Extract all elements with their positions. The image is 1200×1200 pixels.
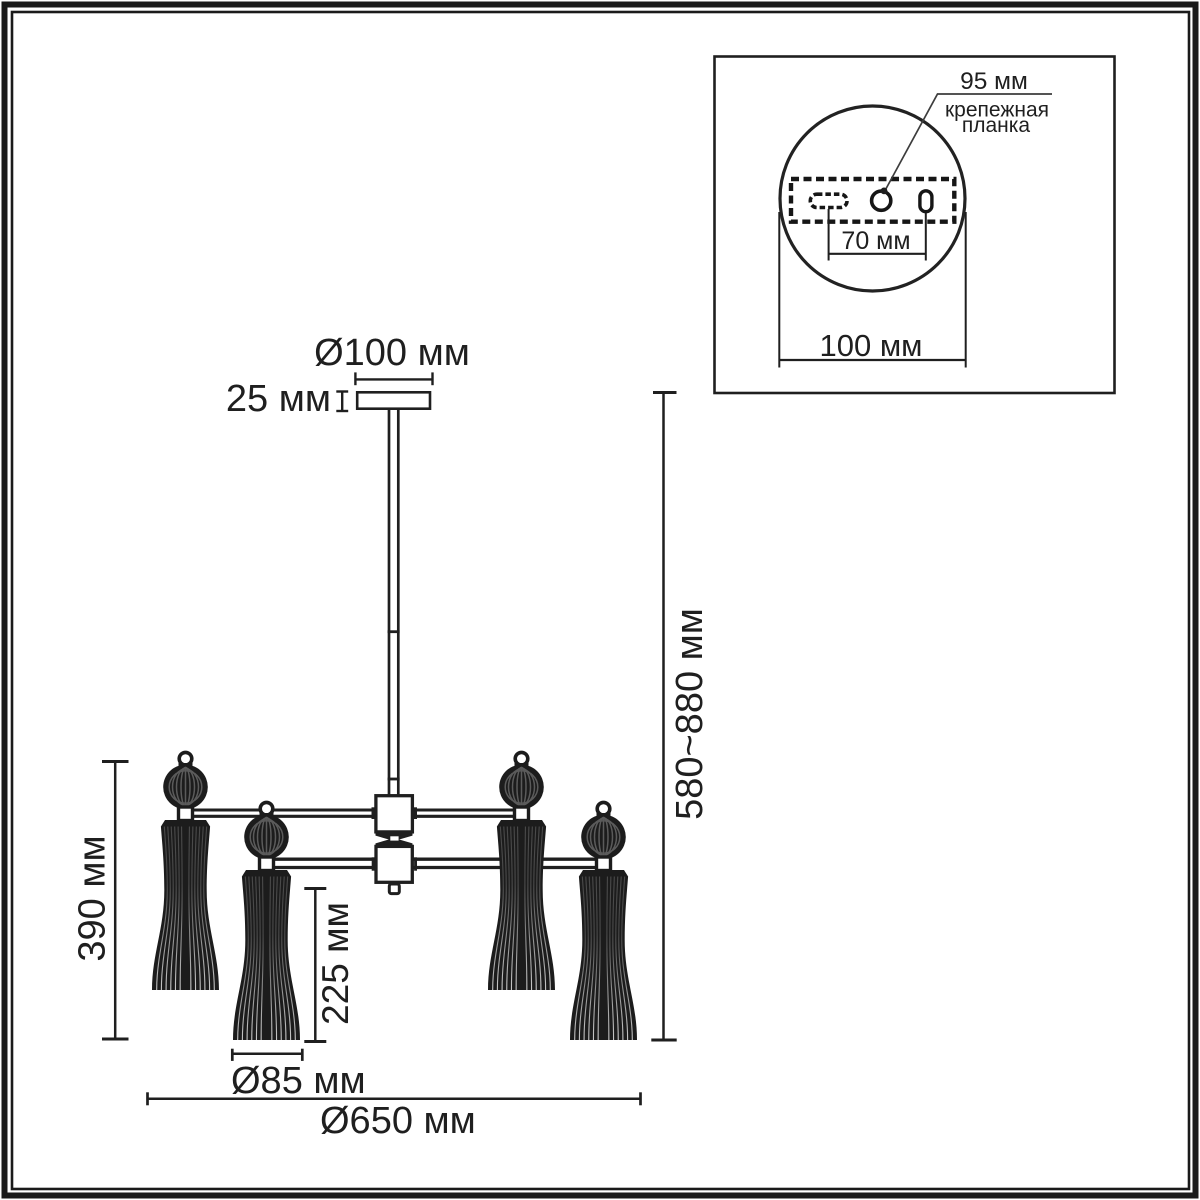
svg-text:планка: планка — [962, 114, 1031, 137]
svg-text:Ø85 мм: Ø85 мм — [231, 1060, 366, 1102]
svg-text:100 мм: 100 мм — [820, 328, 923, 363]
svg-text:25 мм: 25 мм — [226, 378, 331, 420]
svg-text:390 мм: 390 мм — [72, 835, 114, 961]
svg-text:Ø100 мм: Ø100 мм — [314, 332, 470, 374]
svg-text:Ø650 мм: Ø650 мм — [320, 1100, 476, 1142]
svg-text:70 мм: 70 мм — [841, 227, 910, 255]
svg-text:225 мм: 225 мм — [315, 902, 356, 1025]
svg-text:95 мм: 95 мм — [960, 68, 1028, 95]
svg-text:580~880 мм: 580~880 мм — [669, 608, 711, 820]
